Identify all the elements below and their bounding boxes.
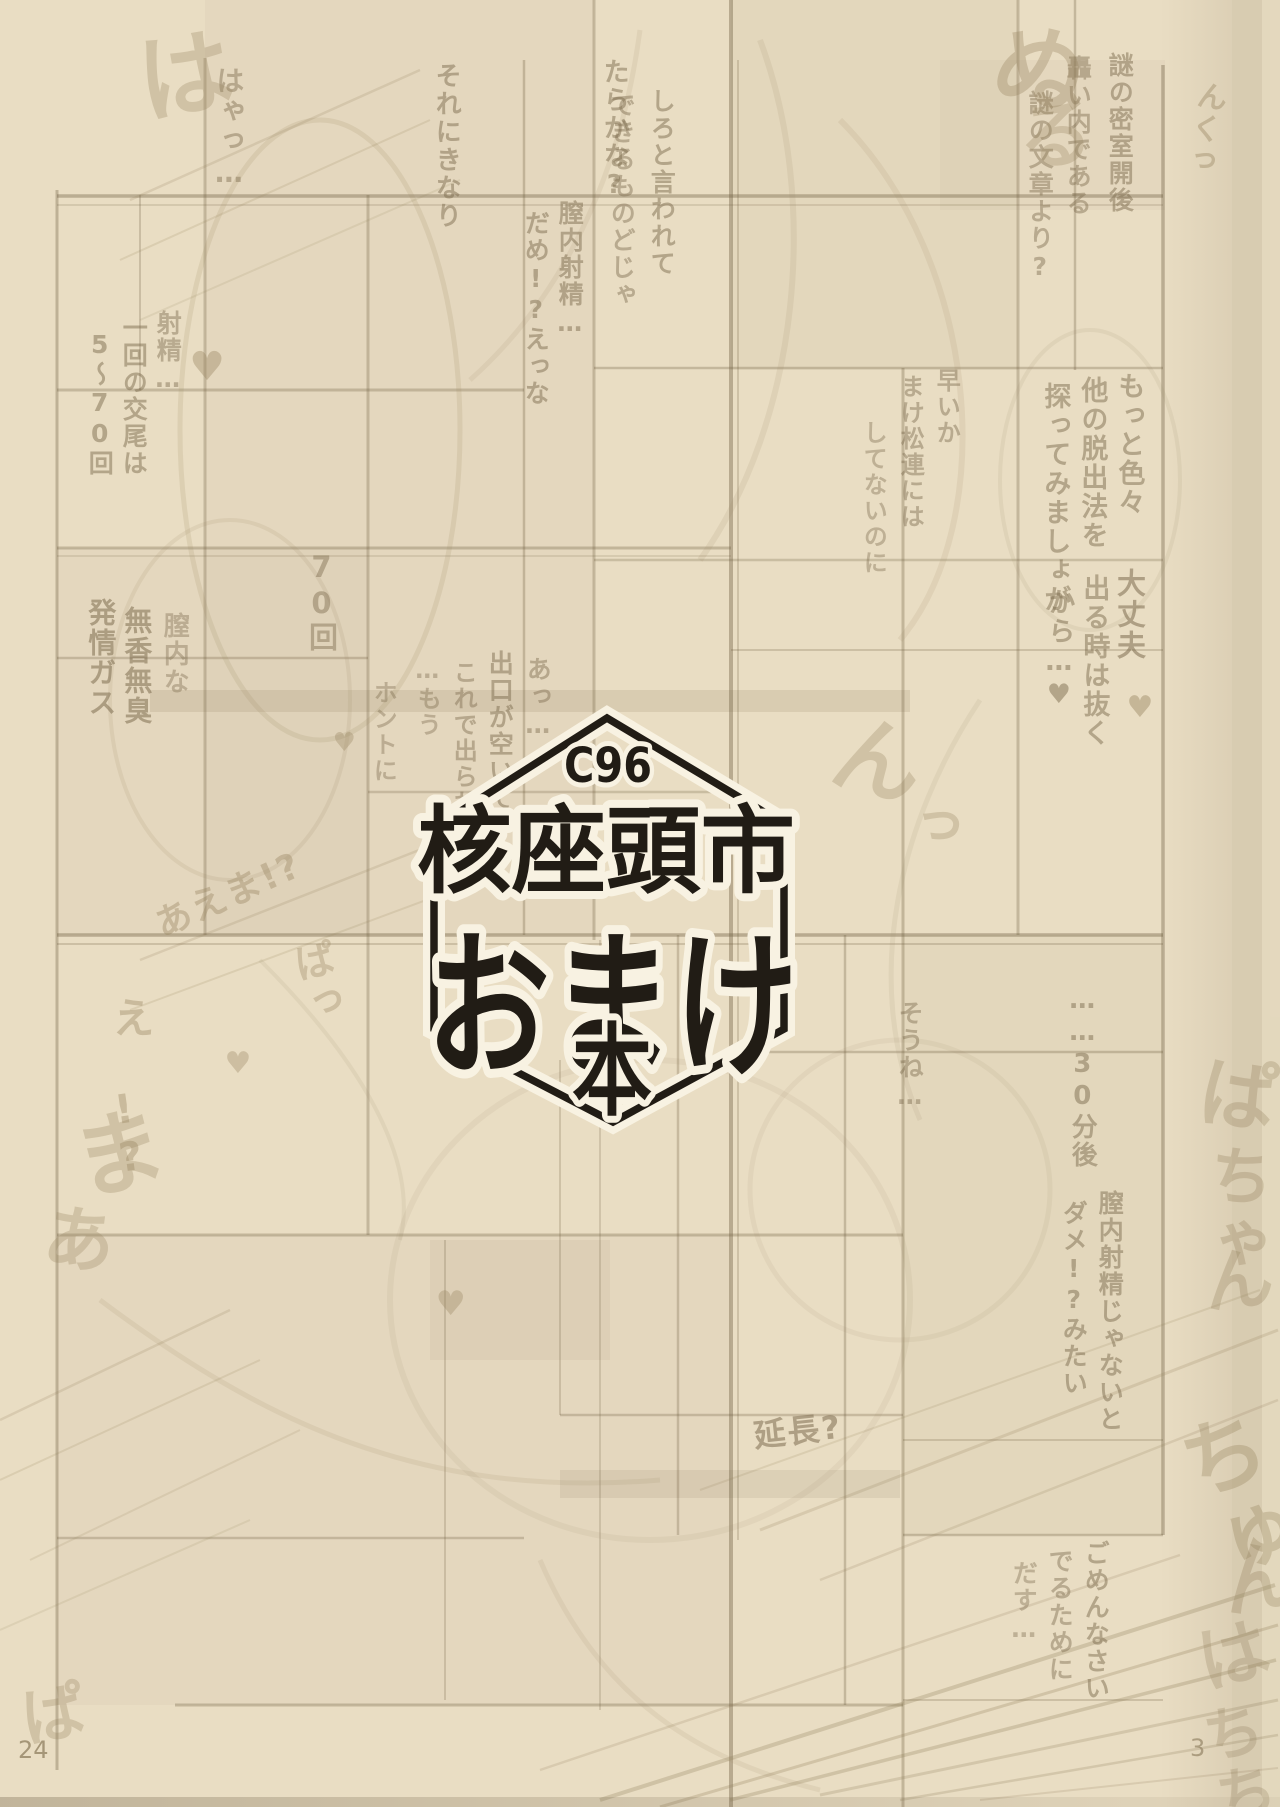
- bleedthrough-text: あっ…: [524, 656, 550, 741]
- sfx-bleed-text: あえま!?: [150, 847, 307, 945]
- sfx-bleed-text: は: [118, 18, 234, 132]
- logo-event-code: C96: [564, 738, 652, 794]
- sfx-bleed-text: る: [1006, 93, 1091, 177]
- bleedthrough-text: ホントに: [370, 680, 395, 784]
- bleedthrough-text: 他の脱出法を: [1077, 376, 1105, 550]
- sfx-bleed-text: ま: [52, 1097, 168, 1212]
- bleedthrough-text: …もう: [414, 656, 439, 738]
- bleedthrough-text: 謎の文章より?: [1026, 90, 1052, 283]
- page-number-left: 24: [18, 1736, 49, 1764]
- sfx-bleed-text: ♥: [186, 344, 228, 392]
- bleedthrough-text: 無香無臭: [122, 606, 151, 726]
- sketch-curves: [100, 30, 1180, 1790]
- bleedthrough-text: 出る時は抜く: [1079, 574, 1107, 748]
- bleedthrough-text: 膣内な: [160, 612, 187, 696]
- bleedthrough-text: 70回: [306, 550, 336, 653]
- bleedthrough-text: はゃっ…: [214, 66, 243, 191]
- sfx-bleed-text: あ: [30, 1196, 115, 1280]
- bleedthrough-text: しろと言われて: [648, 88, 674, 277]
- bleedthrough-text: 膣内射精じゃないと: [1096, 1190, 1122, 1433]
- bleedthrough-text: これで出られ: [450, 660, 475, 816]
- speed-lines: [0, 70, 1278, 1807]
- sfx-bleed-text: ん: [812, 700, 927, 813]
- page-curl-shadow-band: [1232, 0, 1262, 1807]
- bleedthrough-text: から…♥: [1044, 588, 1072, 712]
- page-edge-highlight: [1262, 0, 1280, 1807]
- bleedthrough-text: 発情ガス: [86, 598, 115, 718]
- sfx-bleed-text: !?: [100, 1084, 155, 1185]
- sfx-bleed-text: っ: [895, 790, 962, 856]
- sfx-bleed-text: ぬ: [974, 8, 1092, 124]
- bleedthrough-text: そうね…: [896, 1000, 922, 1112]
- bleedthrough-text: もっと色々: [1114, 372, 1142, 517]
- bleedthrough-text: 出口が空いて: [486, 650, 512, 812]
- page-curl-shadow-soft: [1160, 0, 1232, 1807]
- sfx-bleed-text: ♥: [1124, 690, 1156, 727]
- scanned-doujin-page: それにきなりたらかな?しろと言われてできるものどじゃ膣内射精…だめ!?えっなはゃ…: [0, 0, 1280, 1807]
- bleedthrough-text: してないのに: [860, 420, 885, 576]
- sfx-bleed-text: ♥: [432, 1284, 468, 1326]
- sfx-bleed-text: え: [108, 996, 152, 1040]
- bleedthrough-text: だす…: [1010, 1560, 1036, 1645]
- bleedthrough-text: 大丈夫: [1114, 568, 1144, 661]
- logo-title-kana: おまけ: [426, 916, 798, 1100]
- doujin-logo: C96 核座頭市 おまけ 本: [0, 0, 1280, 1807]
- bleedthrough-text: でるために: [1046, 1548, 1072, 1683]
- logo-title-suffix: 本: [572, 1013, 652, 1130]
- bleedthrough-text: 膣内射精…: [556, 200, 582, 339]
- bleedthrough-text: できるものどじゃ: [608, 92, 634, 308]
- logo-title-kanji: 核座頭市: [417, 797, 795, 907]
- bleedthrough-text: 謎の密室開後: [1106, 52, 1132, 214]
- sfx-bleed-text: ♥: [330, 728, 357, 760]
- bleedthrough-text: ごめんなさい: [1082, 1540, 1108, 1702]
- bleedthrough-text-layer: それにきなりたらかな?しろと言われてできるものどじゃ膣内射精…だめ!?えっなはゃ…: [0, 0, 1280, 1807]
- bleedthrough-text: ……30分後: [1068, 985, 1095, 1169]
- bleedthrough-text: まけ松連には: [897, 374, 922, 530]
- bleedthrough-text: 延長?: [752, 1411, 844, 1454]
- bleedthrough-text: 早いか: [933, 368, 958, 446]
- bottom-edge-shadow: [0, 1797, 1280, 1807]
- bleedthrough-text: 5〜70回: [86, 330, 112, 477]
- bleedthrough-text: たらかな?: [600, 58, 627, 202]
- bleedthrough-text: それにきなり: [432, 62, 459, 230]
- bleedthrough-text: 一回の交尾は: [120, 315, 146, 477]
- bleedthrough-text: だめ!?えっな: [522, 210, 548, 407]
- sfx-bleed-text: ♥: [222, 1046, 254, 1083]
- logo-hexagon-outline: [434, 718, 784, 1122]
- panel-grid-lines: [57, 0, 1163, 1807]
- bleedthrough-text: ダメ!?みたい: [1060, 1200, 1086, 1397]
- sfx-bleed-text: ぱっ: [286, 937, 345, 1028]
- tone-patches: [57, 0, 1165, 1705]
- bleedthrough-text: 探ってみましょが: [1040, 382, 1068, 614]
- page-number-right: 3: [1190, 1734, 1205, 1762]
- bleedthrough-art-layer: [0, 0, 1280, 1807]
- bleedthrough-text: 射精…: [154, 310, 180, 395]
- bleedthrough-text: 轟い内である: [1064, 55, 1090, 217]
